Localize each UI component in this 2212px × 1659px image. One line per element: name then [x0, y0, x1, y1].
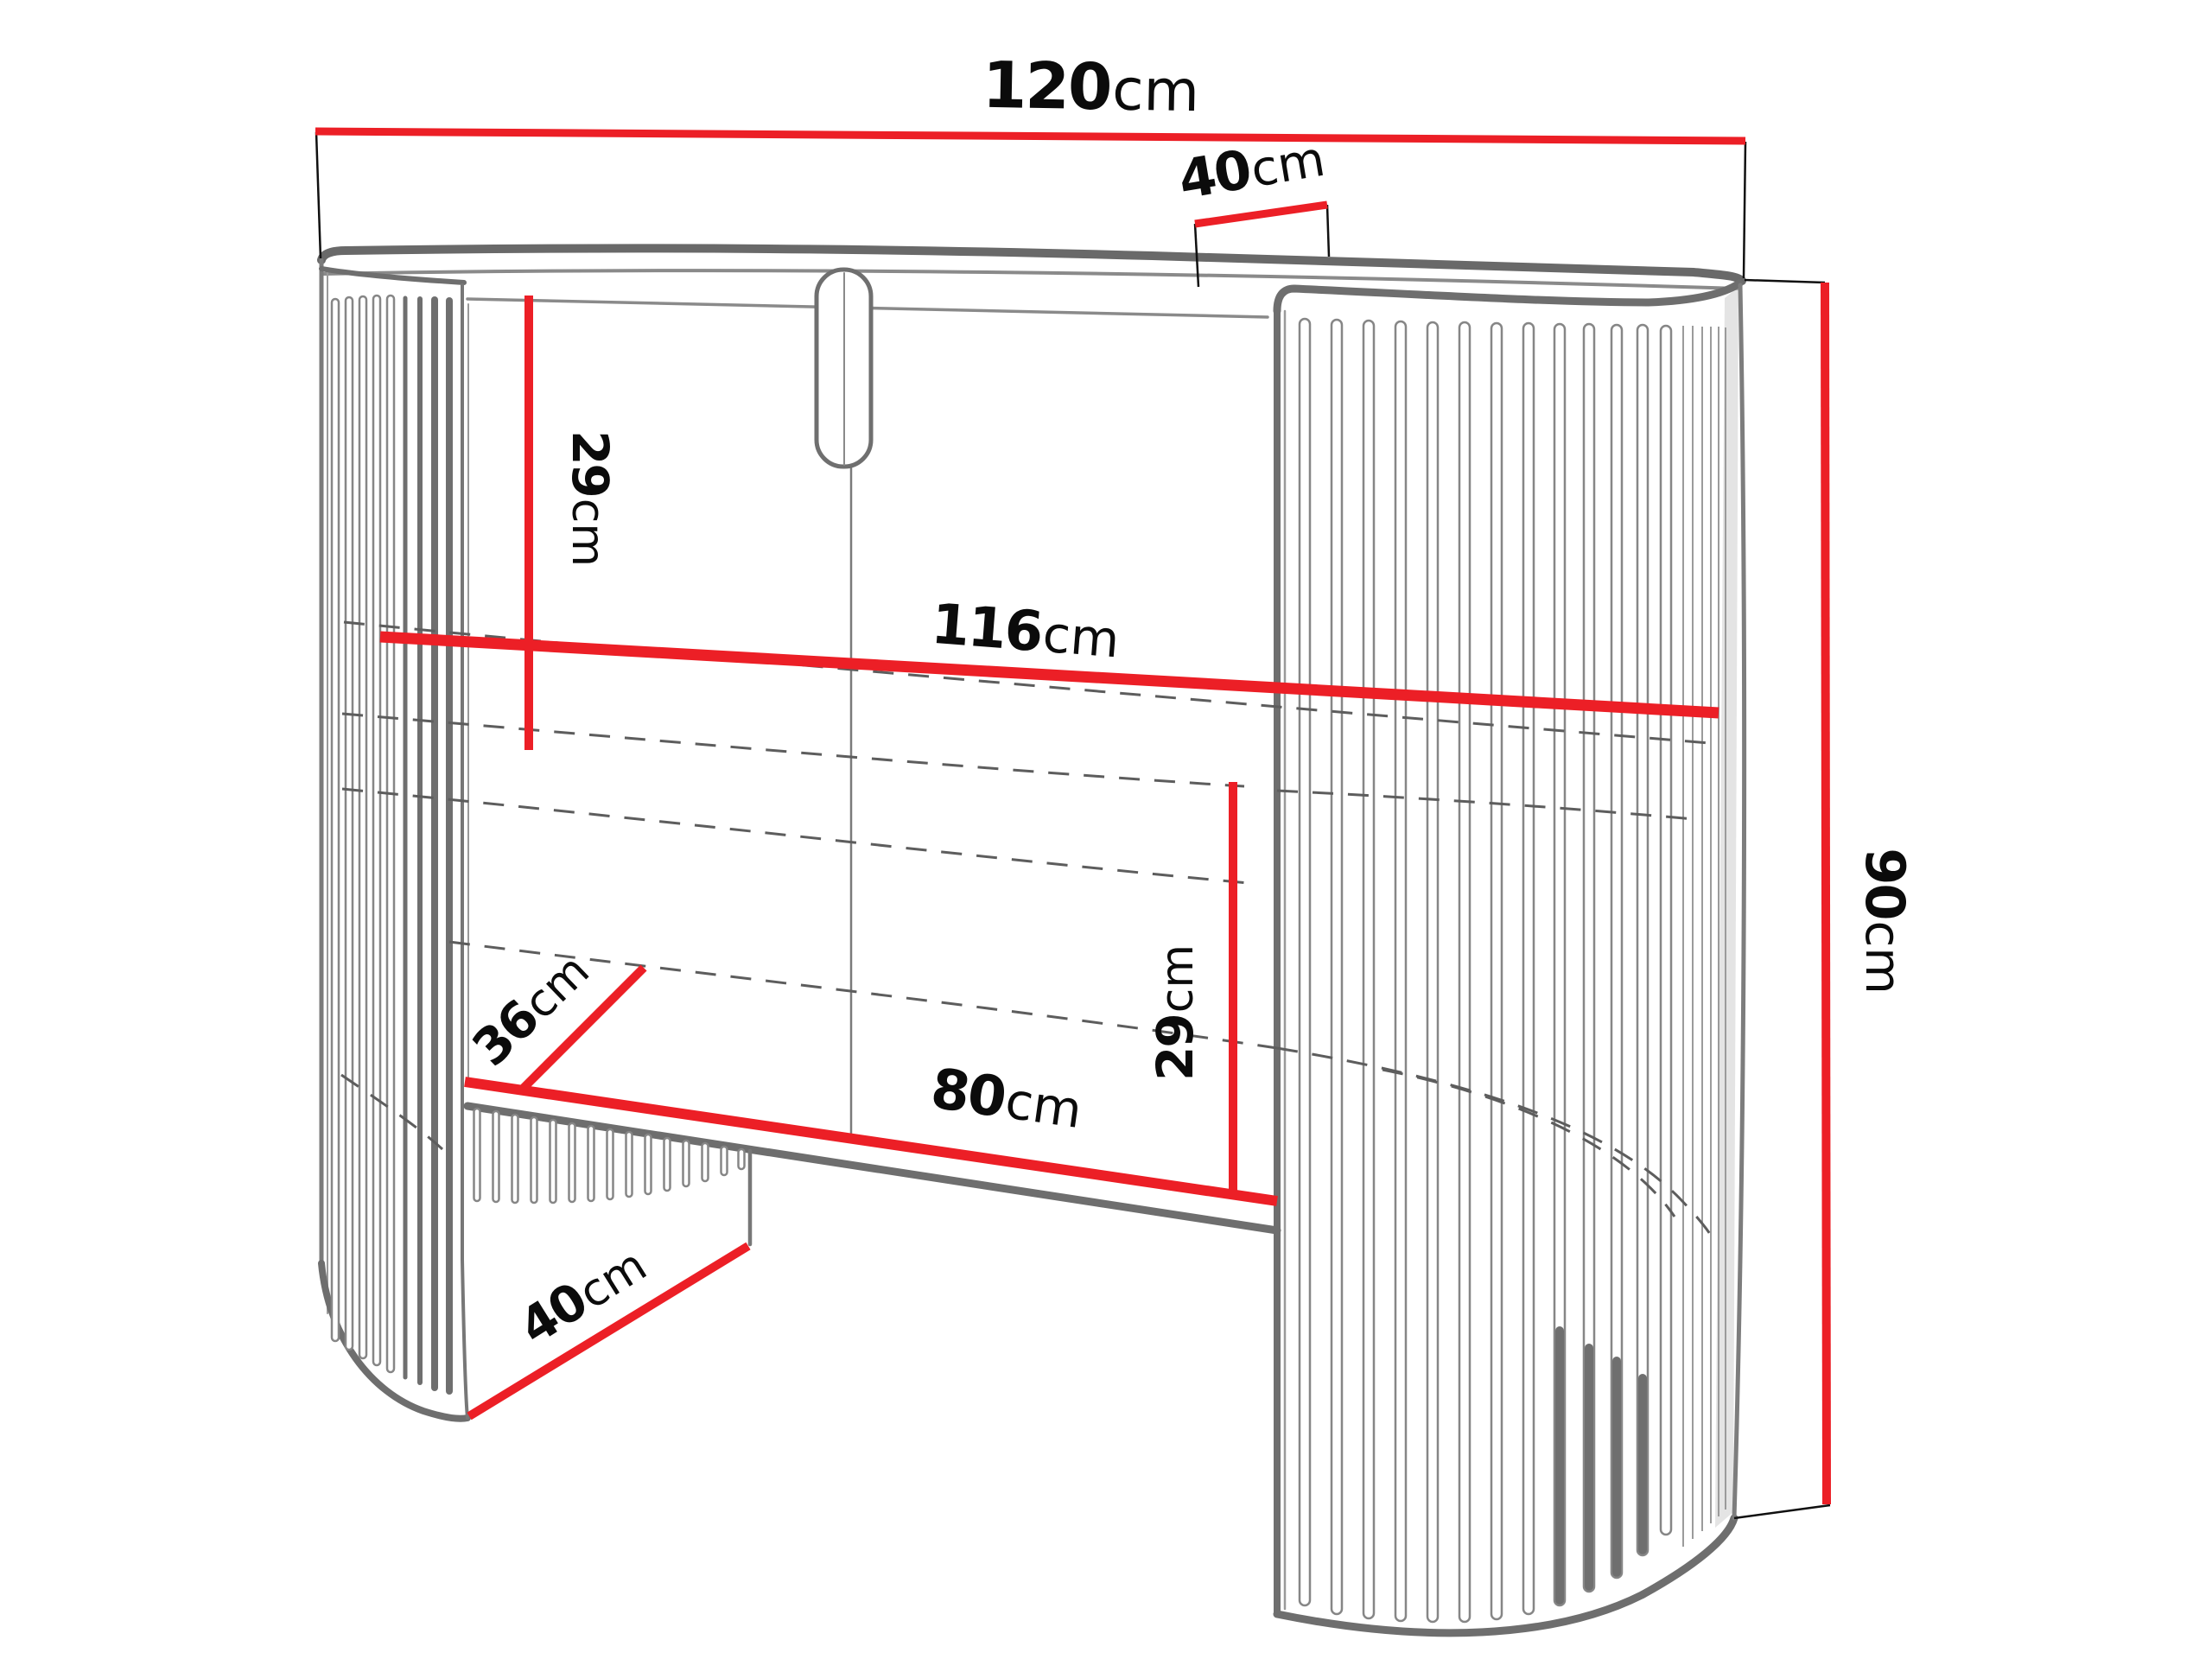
hidden-shelf-edges	[341, 622, 1715, 1243]
slat	[1491, 323, 1502, 1619]
slat	[739, 1149, 745, 1169]
label-upper-clearance: 29cm	[561, 430, 620, 567]
slat	[607, 1129, 613, 1199]
label-height: 90cm	[1853, 848, 1916, 995]
slat	[1363, 321, 1374, 1618]
slat	[721, 1147, 728, 1175]
slat	[569, 1123, 575, 1202]
left-pillar-right-edge	[462, 285, 467, 1418]
dimension-line-height	[1825, 283, 1827, 1504]
extension-line	[1745, 280, 1825, 283]
label-lower-clearance: 29cm	[1146, 944, 1205, 1081]
slat	[1395, 321, 1406, 1621]
slat	[550, 1120, 556, 1203]
slat	[346, 297, 353, 1350]
door-section	[817, 270, 871, 1139]
extension-line	[316, 132, 321, 258]
top-panel	[321, 248, 1742, 317]
dimension-line-top-depth	[1195, 205, 1327, 224]
dimension-line-opening-width	[465, 1082, 1277, 1201]
furniture-dimension-diagram: 120cm 40cm 29cm 116cm 90cm 36cm 29cm 80c…	[0, 0, 2212, 1659]
top-back-rim	[321, 248, 1742, 281]
label-base-depth: 40cm	[509, 1234, 656, 1356]
upper-shelf-front-lower-edge-dashed	[342, 714, 1244, 786]
extension-line	[1734, 1505, 1830, 1518]
dimension-line-top-width	[315, 131, 1745, 141]
slat	[373, 296, 380, 1365]
slat	[1427, 322, 1438, 1622]
slat	[512, 1115, 518, 1203]
label-inner-width: 116cm	[929, 593, 1122, 671]
right-pillar	[1277, 283, 1745, 1633]
upper-shelf-back-lower-edge-dashed	[342, 789, 1249, 883]
slat	[645, 1135, 652, 1194]
top-front-edge	[324, 270, 1738, 289]
slat	[1459, 322, 1470, 1622]
slat	[702, 1143, 709, 1181]
slat	[1523, 323, 1534, 1614]
slat	[1637, 325, 1648, 1555]
slat	[531, 1117, 537, 1203]
slat	[332, 299, 339, 1341]
slat	[664, 1138, 671, 1191]
diagram-canvas: 120cm 40cm 29cm 116cm 90cm 36cm 29cm 80c…	[0, 0, 2212, 1659]
slat	[683, 1141, 690, 1186]
left-pillar	[321, 260, 468, 1419]
slat	[1661, 326, 1671, 1535]
extension-line	[1744, 142, 1745, 278]
slat	[1300, 319, 1310, 1605]
extension-line	[1327, 205, 1329, 257]
label-top-width: 120cm	[982, 48, 1200, 126]
slat	[359, 296, 366, 1358]
slat	[474, 1109, 480, 1201]
label-opening-width: 80cm	[927, 1057, 1086, 1141]
label-shelf-depth: 36cm	[461, 940, 601, 1077]
slat	[1332, 320, 1342, 1614]
slat	[493, 1111, 499, 1202]
slat	[588, 1126, 594, 1201]
slat	[626, 1132, 632, 1197]
slat	[387, 296, 394, 1372]
base-shelf	[467, 1106, 1277, 1244]
